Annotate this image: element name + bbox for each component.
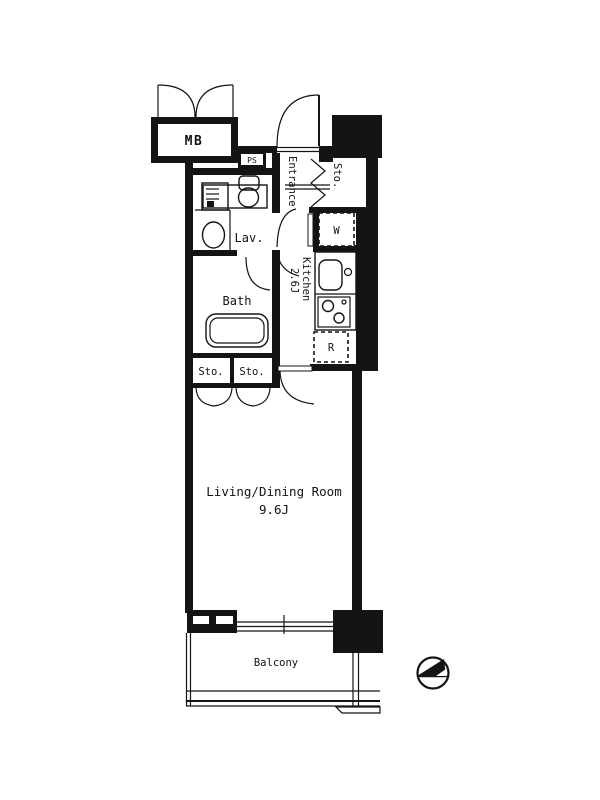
low-window-tick — [209, 616, 216, 624]
meter-box-label: MB — [185, 134, 204, 149]
wall-right-kitchen — [356, 207, 378, 371]
bath-door-swing-icon — [246, 257, 270, 290]
wall-top-b — [319, 146, 333, 162]
kitchen-label: Kitchen — [300, 257, 312, 301]
washer-area: W — [319, 213, 354, 246]
column-top-right — [332, 115, 382, 158]
lavatory-area: Lav. — [195, 176, 267, 255]
gas-stove-icon — [318, 297, 350, 327]
kitchen-size-label: 2.6J — [288, 268, 300, 293]
living-dining-label: Living/Dining Room — [206, 484, 341, 499]
closet-double-door-icon — [196, 388, 270, 406]
ldk-door-swing-icon — [278, 366, 314, 404]
entrance-door-swing-icon — [277, 95, 319, 147]
mb-door-swing-icon — [158, 85, 233, 117]
bifold-door-icon — [311, 159, 325, 207]
walls — [185, 115, 383, 653]
toilet-icon — [239, 176, 260, 207]
floor-plan-page: MB PS Entrance Sto. — [0, 0, 600, 800]
hall-storage-left-label: Sto. — [198, 366, 223, 378]
sliding-window-icon — [237, 615, 333, 634]
wall-lav-top — [193, 168, 280, 175]
lavatory-label: Lav. — [235, 231, 264, 245]
wall-kitchen-bottom — [310, 364, 378, 371]
wall-sto-bottom — [193, 383, 280, 388]
entrance-label: Entrance — [286, 156, 298, 207]
washing-machine-label: W — [333, 225, 340, 237]
bath-area: Bath — [206, 257, 270, 347]
living-dining-size-label: 9.6J — [259, 502, 289, 517]
wall-hall-lav-upper — [272, 153, 280, 213]
floor-plan-drawing: MB PS Entrance Sto. — [0, 0, 600, 800]
balcony-label: Balcony — [254, 657, 298, 669]
wall-bath-sto — [193, 353, 280, 358]
wall-right-upper — [366, 158, 378, 210]
refrigerator-label: R — [328, 342, 335, 354]
north-compass-icon — [417, 658, 449, 689]
washbasin-cabinet-icon — [202, 183, 267, 210]
wall-right-living — [352, 371, 362, 610]
wash-basin-icon — [203, 222, 225, 248]
hall-storage-right-label: Sto. — [239, 366, 264, 378]
pipe-shaft-label: PS — [247, 156, 257, 165]
bathtub-icon — [206, 314, 268, 347]
kitchen-area: Kitchen 2.6J R — [278, 252, 356, 404]
kitchen-sink-icon — [319, 260, 352, 290]
meter-box: MB — [151, 85, 238, 163]
wall-left — [185, 150, 193, 613]
entrance-storage-label: Sto. — [331, 163, 343, 188]
column-bottom-right — [333, 610, 383, 653]
pipe-shaft: PS — [238, 151, 266, 168]
bath-label: Bath — [223, 294, 252, 308]
wall-washer-top — [309, 207, 378, 213]
wall-sto-divider — [230, 358, 234, 383]
